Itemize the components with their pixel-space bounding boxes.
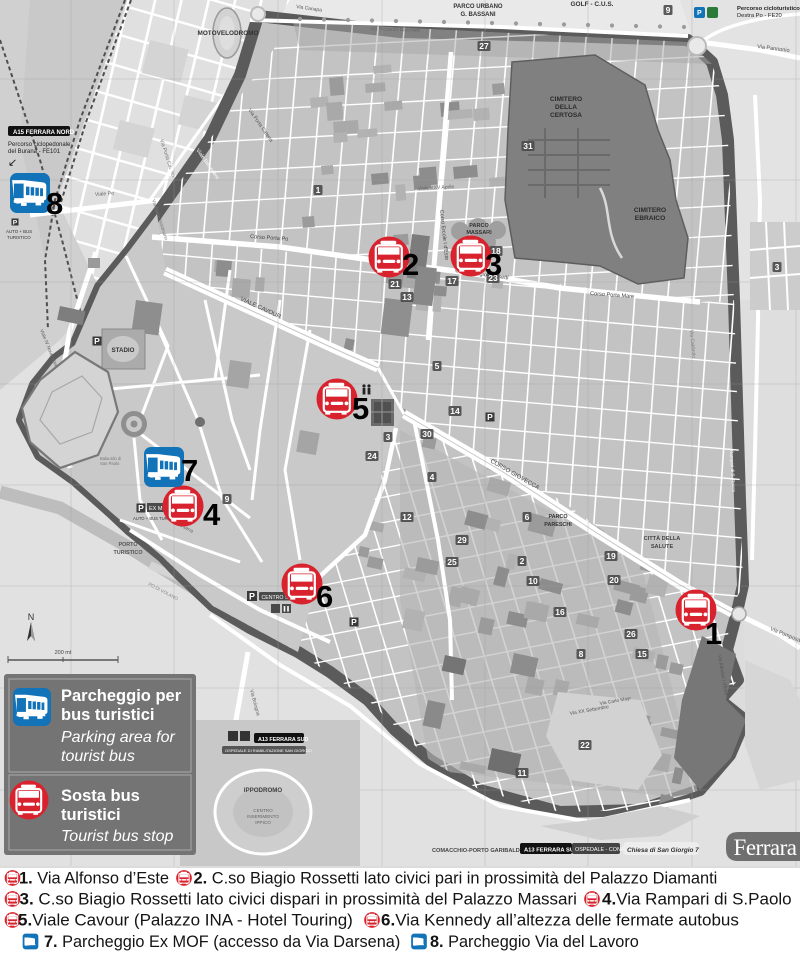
svg-text:Sosta bus: Sosta bus: [61, 787, 140, 805]
svg-text:SALUTE: SALUTE: [651, 544, 674, 550]
svg-text:P: P: [249, 592, 255, 602]
svg-text:CERTOSA: CERTOSA: [550, 112, 582, 119]
svg-text:11: 11: [518, 768, 527, 778]
svg-text:COMACCHIO-PORTO GARIBALDI /: COMACCHIO-PORTO GARIBALDI /: [432, 848, 525, 854]
svg-text:2: 2: [402, 247, 419, 282]
svg-text:1: 1: [705, 616, 722, 651]
svg-text:8. Parcheggio Via del Lavoro: 8. Parcheggio Via del Lavoro: [430, 933, 639, 951]
svg-text:6: 6: [525, 512, 530, 522]
svg-text:DELLA: DELLA: [555, 104, 577, 111]
svg-text:P: P: [697, 10, 702, 17]
svg-text:10: 10: [528, 576, 538, 586]
svg-text:9: 9: [666, 5, 671, 15]
svg-text:25: 25: [447, 557, 457, 567]
svg-text:Chiesa di San Giorgio 7: Chiesa di San Giorgio 7: [627, 847, 699, 854]
svg-text:↙: ↙: [8, 157, 17, 169]
svg-text:20: 20: [609, 575, 619, 585]
svg-text:19: 19: [606, 551, 616, 561]
svg-text:STADIO: STADIO: [112, 347, 135, 354]
svg-text:7. Parcheggio Ex MOF (accesso: 7. Parcheggio Ex MOF (accesso da Via Dar…: [44, 933, 400, 951]
svg-text:29: 29: [457, 535, 467, 545]
svg-text:CITTÀ DELLA: CITTÀ DELLA: [644, 535, 681, 542]
svg-text:27: 27: [479, 41, 489, 51]
svg-text:G. BASSANI: G. BASSANI: [460, 12, 495, 18]
svg-text:14: 14: [450, 406, 460, 416]
svg-text:3: 3: [485, 247, 502, 282]
svg-text:2: 2: [520, 556, 525, 566]
svg-text:30: 30: [422, 429, 432, 439]
svg-text:24: 24: [367, 451, 377, 461]
svg-text:21: 21: [390, 279, 400, 289]
svg-text:PARCO: PARCO: [469, 223, 489, 229]
svg-text:CENTRO: CENTRO: [253, 808, 273, 813]
svg-text:4.Via Rampari di S.Paolo: 4.Via Rampari di S.Paolo: [602, 890, 792, 909]
svg-text:TURISTICO: TURISTICO: [113, 550, 142, 556]
svg-text:Destra Po - FE20: Destra Po - FE20: [737, 13, 782, 19]
svg-text:5: 5: [352, 391, 369, 426]
svg-text:15: 15: [637, 649, 647, 659]
svg-text:INSERIMENTO: INSERIMENTO: [247, 814, 279, 819]
svg-text:26: 26: [626, 629, 636, 639]
svg-text:1. Via Alfonso d’Este: 1. Via Alfonso d’Este: [19, 870, 169, 888]
svg-text:A15 FERRARA NORD: A15 FERRARA NORD: [13, 130, 75, 136]
svg-text:turistici: turistici: [61, 806, 121, 824]
svg-text:tourist bus: tourist bus: [61, 748, 135, 765]
svg-text:IPPICO: IPPICO: [255, 820, 271, 825]
svg-text:200 mt: 200 mt: [55, 650, 72, 656]
svg-text:3. C.so Biagio Rossetti lato c: 3. C.so Biagio Rossetti lato civici disp…: [20, 890, 577, 909]
svg-text:OSPEDALE - CONA: OSPEDALE - CONA: [575, 847, 625, 853]
svg-text:PARCO URBANO: PARCO URBANO: [453, 4, 503, 10]
svg-text:OSPEDALE DI RIABILITAZIONE SAN: OSPEDALE DI RIABILITAZIONE SAN GIORGIO: [225, 748, 312, 753]
svg-text:GOLF - C.U.S.: GOLF - C.U.S.: [571, 1, 614, 8]
svg-text:5.Viale Cavour (Palazzo INA -: 5.Viale Cavour (Palazzo INA - Hotel Tour…: [18, 911, 353, 930]
svg-text:A13 FERRARA SUD: A13 FERRARA SUD: [258, 737, 309, 743]
svg-text:San Paolo: San Paolo: [100, 461, 120, 466]
svg-text:PARCO: PARCO: [548, 514, 567, 520]
svg-text:Parking area for: Parking area for: [61, 729, 176, 746]
svg-text:Parcheggio per: Parcheggio per: [61, 687, 182, 705]
svg-text:3: 3: [386, 432, 391, 442]
svg-text:Percorso ciclopedonale: Percorso ciclopedonale: [8, 142, 71, 148]
svg-text:Percorso cicloturistico: Percorso cicloturistico: [737, 6, 800, 12]
svg-text:6: 6: [316, 579, 333, 614]
svg-text:Tourist bus stop: Tourist bus stop: [61, 828, 173, 845]
svg-text:CIMITERO: CIMITERO: [550, 96, 582, 103]
svg-text:bus turistici: bus turistici: [61, 706, 155, 724]
svg-text:4: 4: [430, 472, 435, 482]
svg-text:1: 1: [316, 185, 321, 195]
svg-text:N: N: [28, 612, 35, 622]
svg-text:EBRAICO: EBRAICO: [635, 215, 665, 222]
svg-text:CIMITERO: CIMITERO: [634, 207, 666, 214]
svg-text:PORTO: PORTO: [118, 542, 137, 548]
svg-text:3: 3: [775, 262, 780, 272]
svg-text:9: 9: [225, 494, 230, 504]
svg-text:Ferrara: Ferrara: [734, 835, 797, 860]
svg-text:del Burana - FE101: del Burana - FE101: [8, 149, 61, 155]
svg-text:16: 16: [555, 607, 565, 617]
svg-text:5: 5: [435, 361, 440, 371]
svg-text:AUTO + BUS: AUTO + BUS: [6, 229, 32, 234]
svg-text:6.Via Kennedy all’altezza dell: 6.Via Kennedy all’altezza delle fermate …: [381, 911, 739, 930]
svg-text:TURISTICO: TURISTICO: [7, 235, 31, 240]
svg-text:22: 22: [580, 740, 590, 750]
svg-text:MOTOVELODROMO: MOTOVELODROMO: [198, 30, 259, 37]
svg-text:17: 17: [447, 276, 457, 286]
svg-text:4: 4: [203, 497, 221, 532]
svg-text:7: 7: [181, 453, 198, 488]
svg-text:MASSARI: MASSARI: [466, 230, 492, 236]
svg-text:12: 12: [402, 512, 412, 522]
svg-text:2. C.so Biagio Rossetti lato c: 2. C.so Biagio Rossetti lato civici pari…: [194, 870, 718, 888]
svg-text:13: 13: [402, 292, 412, 302]
svg-text:PARESCHI: PARESCHI: [544, 522, 572, 528]
svg-text:31: 31: [523, 141, 533, 151]
svg-text:IPPODROMO: IPPODROMO: [244, 787, 283, 794]
svg-text:A13 FERRARA SUD: A13 FERRARA SUD: [524, 848, 578, 854]
svg-text:8: 8: [579, 649, 584, 659]
svg-text:8: 8: [46, 186, 63, 221]
